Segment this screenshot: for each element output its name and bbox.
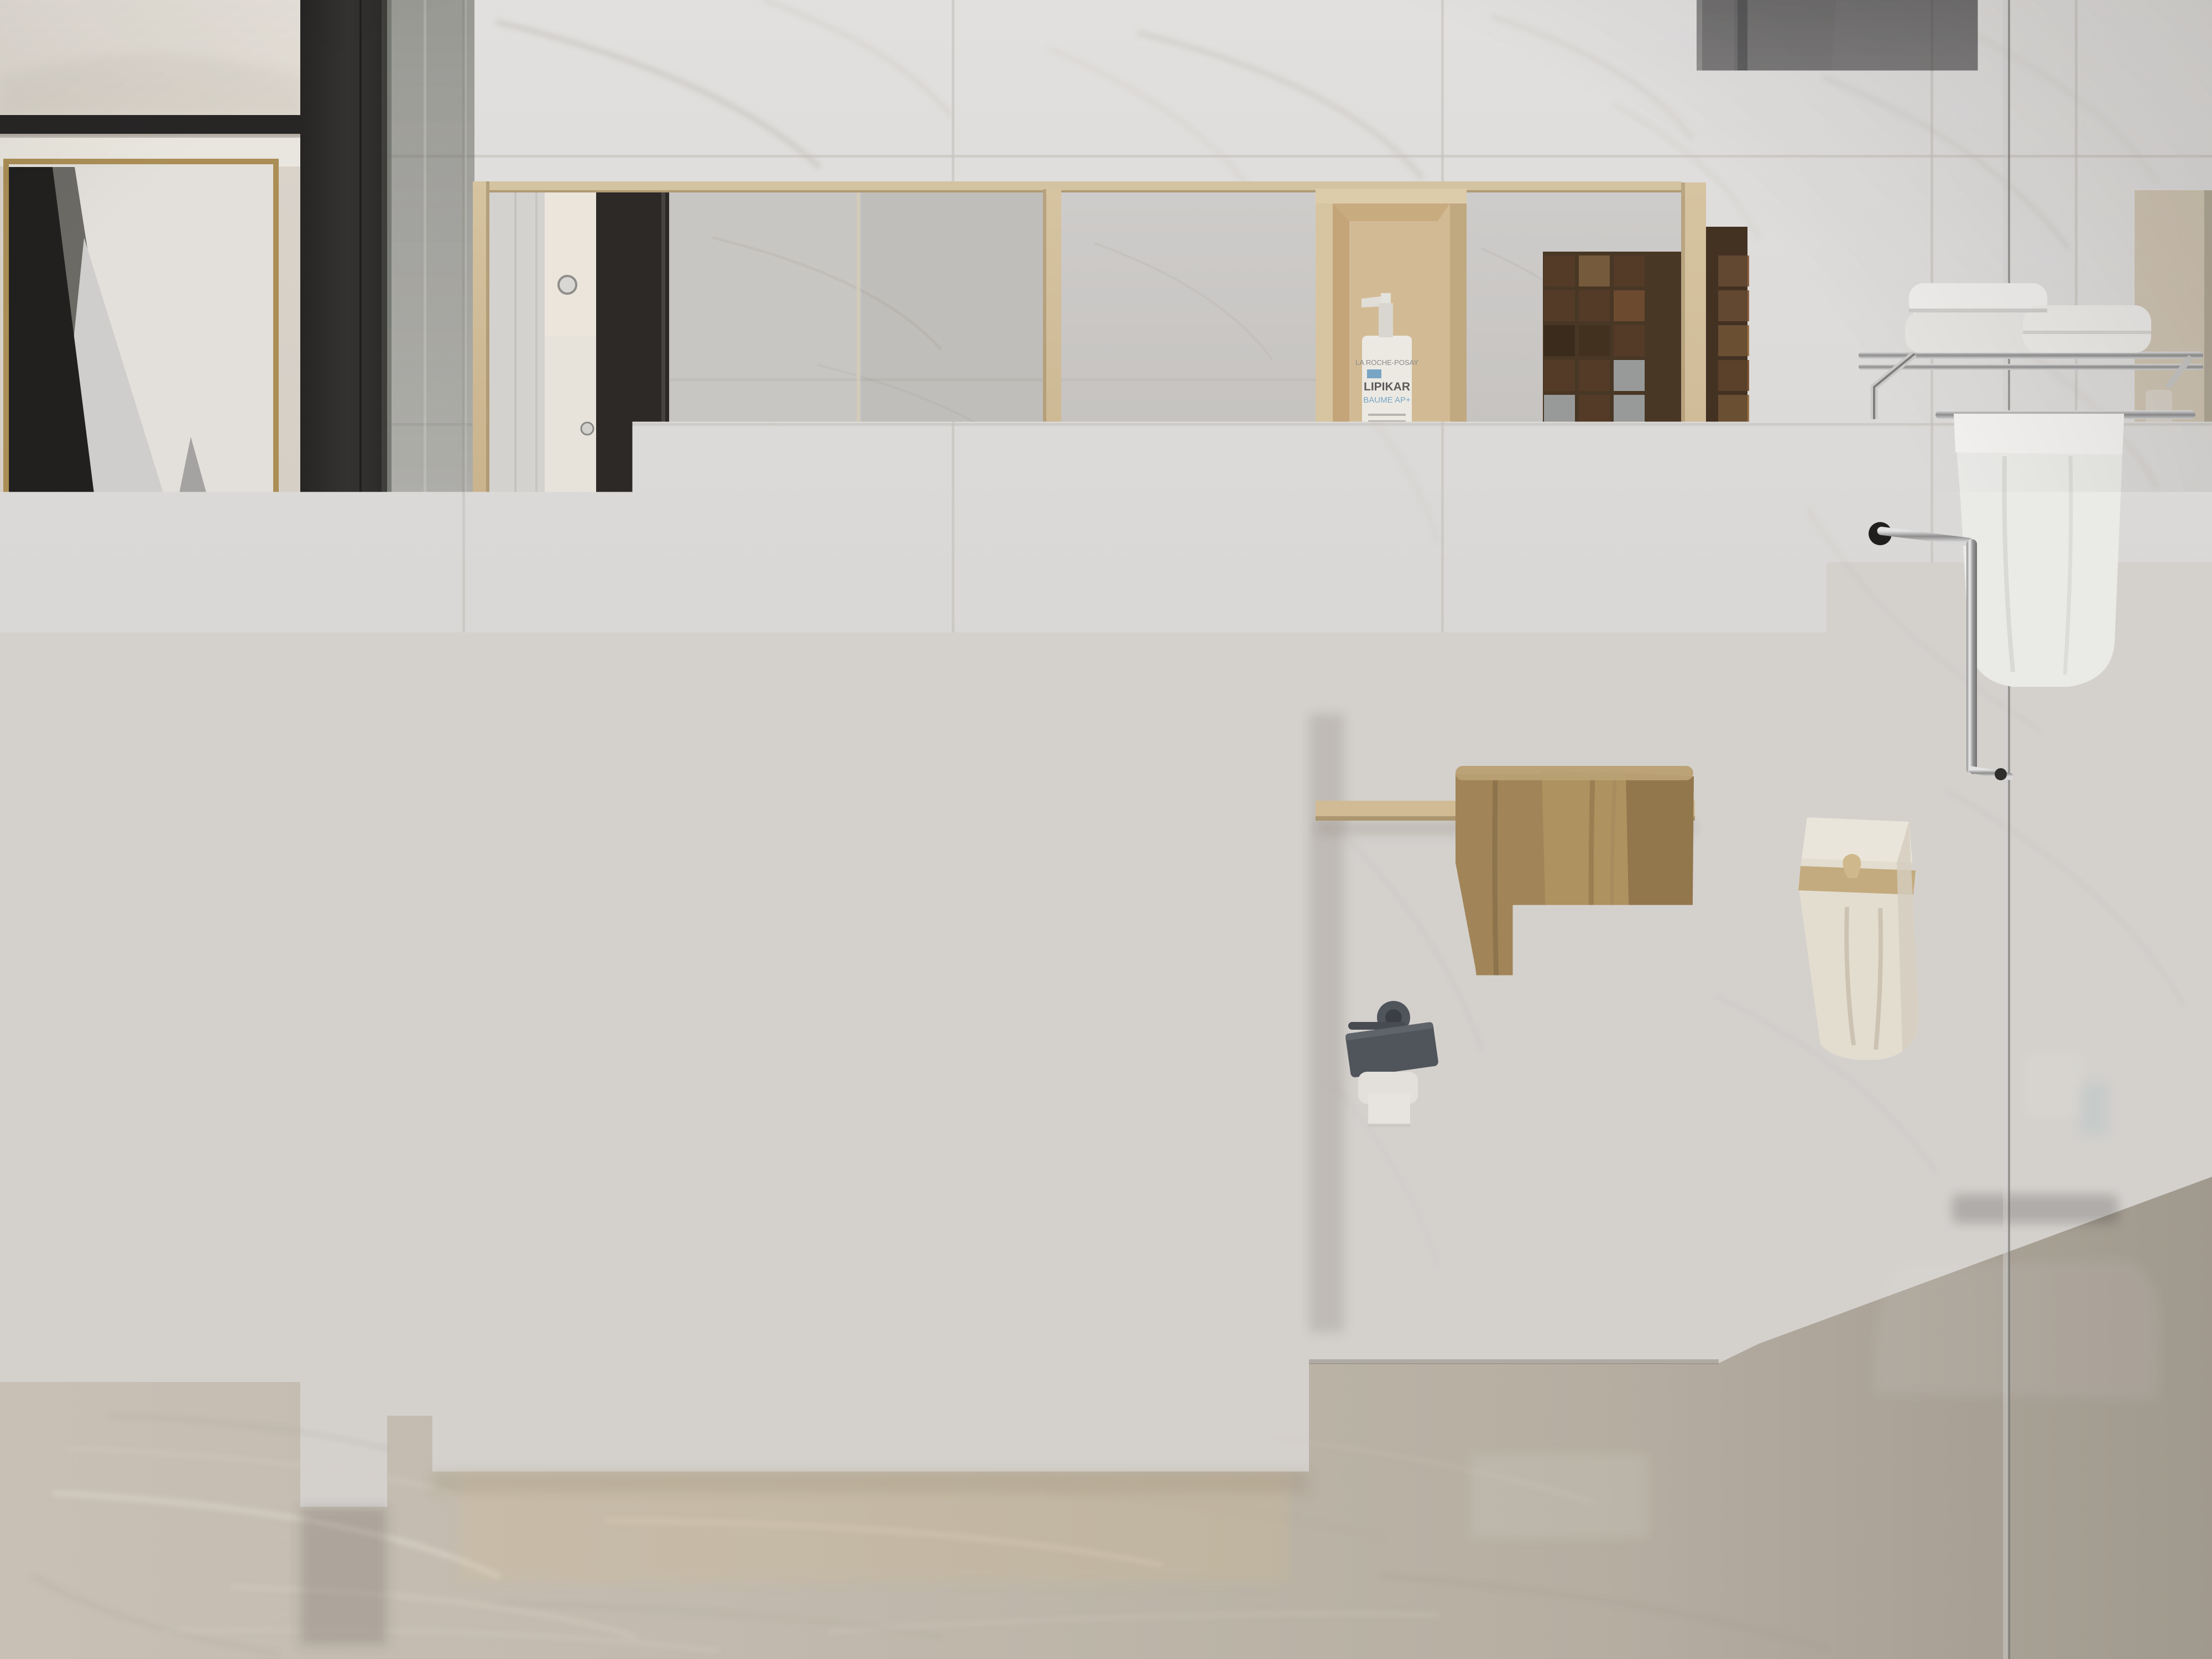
svg-text:RENOVATION: RENOVATION xyxy=(1838,1592,2001,1618)
